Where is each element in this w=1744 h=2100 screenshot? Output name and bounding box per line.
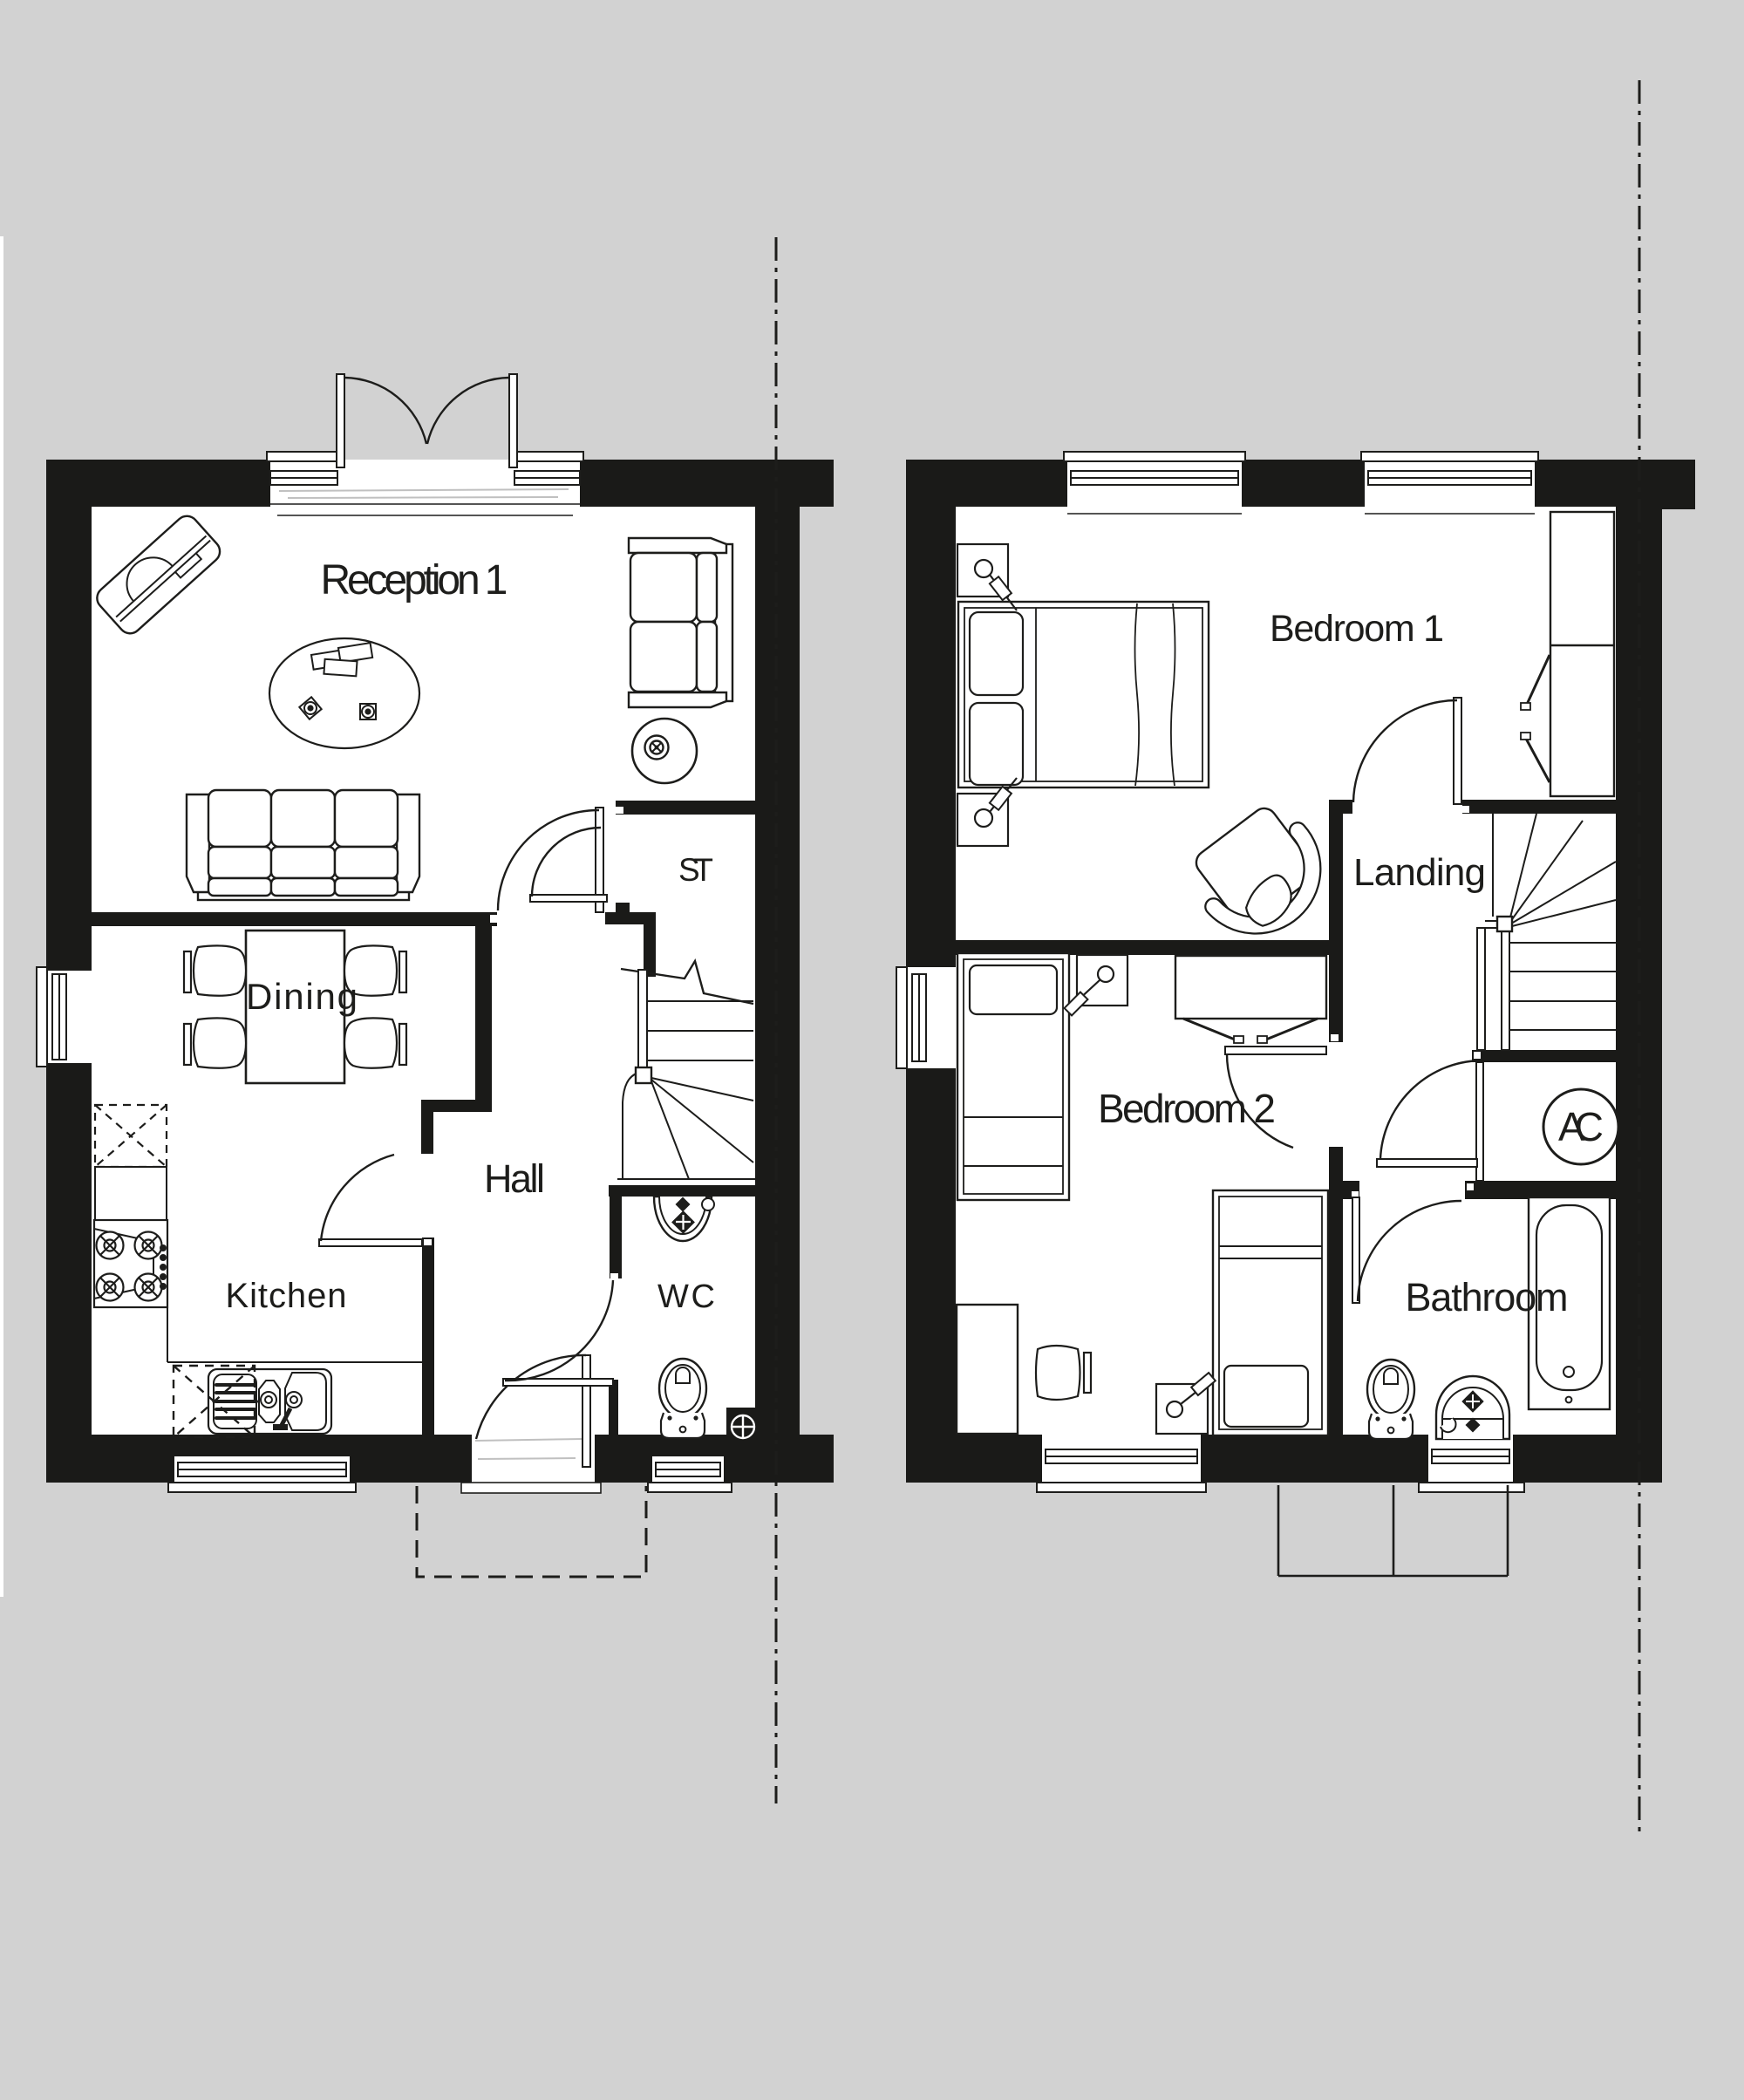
svg-text:AC: AC (1558, 1104, 1604, 1149)
svg-text:Bedroom 2: Bedroom 2 (1098, 1086, 1276, 1131)
svg-text:Landing: Landing (1353, 851, 1486, 894)
svg-text:Bathroom: Bathroom (1406, 1275, 1569, 1319)
svg-text:Bedroom 1: Bedroom 1 (1270, 608, 1444, 650)
svg-text:Dining: Dining (246, 976, 358, 1017)
svg-text:ST: ST (678, 852, 713, 888)
svg-text:Kitchen: Kitchen (226, 1277, 347, 1315)
svg-text:Reception 1: Reception 1 (321, 557, 508, 603)
svg-text:WC: WC (657, 1278, 715, 1315)
svg-text:Hall: Hall (484, 1156, 545, 1201)
